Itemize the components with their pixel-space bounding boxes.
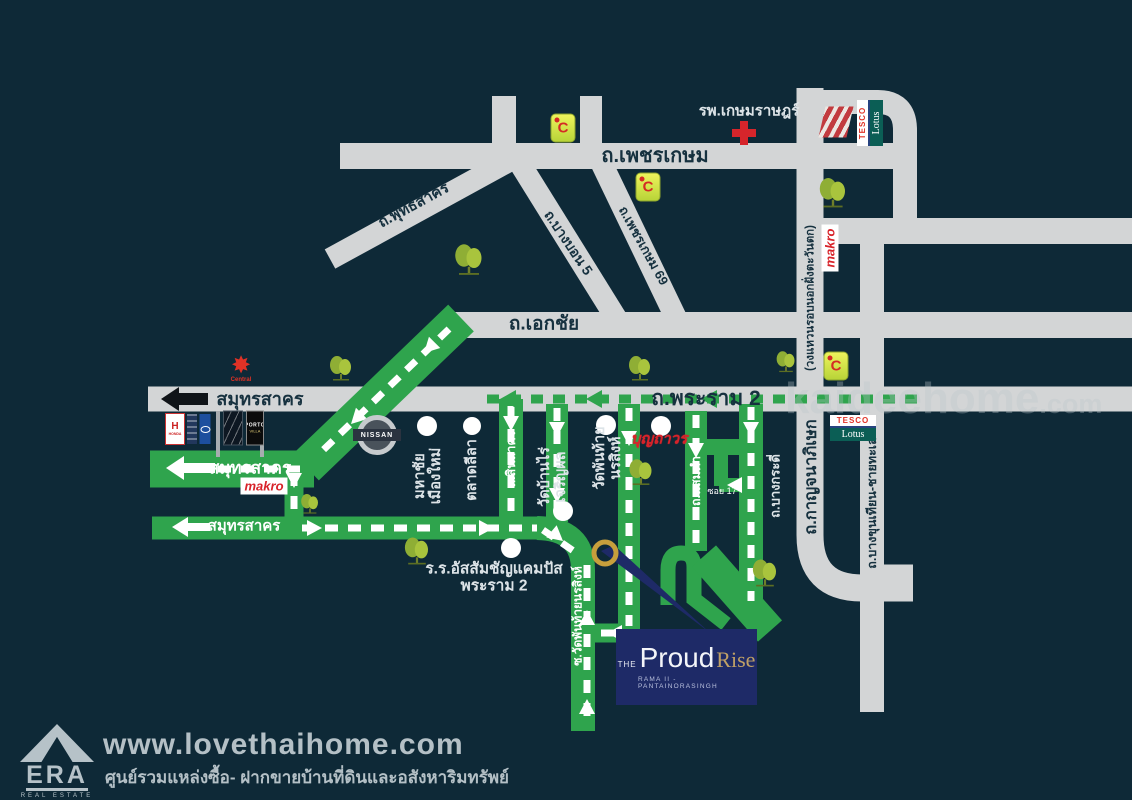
footer-tagline: ศูนย์รวมแหล่งซื้อ- ฝากขายบ้านที่ดินและอส… <box>105 764 509 791</box>
era-subtext: REAL ESTATE <box>21 793 94 799</box>
project-logo-card: THE Proud Rise RAMA II - PANTAINORASINGH <box>616 629 757 705</box>
poi-marker <box>417 416 437 436</box>
watermark-suffix: .com <box>1039 389 1102 419</box>
project-the: THE <box>618 660 637 669</box>
road-gray <box>330 161 509 259</box>
project-subtitle: RAMA II - PANTAINORASINGH <box>616 676 757 690</box>
era-house-icon <box>20 724 94 762</box>
sign-post <box>216 411 220 457</box>
tree-icon <box>455 244 481 275</box>
tree-icon <box>405 538 428 565</box>
era-text: ERA <box>26 762 88 791</box>
poi-marker <box>463 417 481 435</box>
watermark: kaideehome.com <box>785 374 1102 424</box>
footer: ERA REAL ESTATE www.lovethaihome.com ศูน… <box>0 718 1132 800</box>
sign-post <box>260 411 264 457</box>
era-logo: ERA REAL ESTATE <box>14 724 100 799</box>
location-map: ถ.เพชรเกษมถ.พุทธสาครถ.บางบอน 5ถ.เพชรเกษม… <box>0 0 1132 800</box>
road-green <box>537 528 583 731</box>
poi-marker <box>651 416 671 436</box>
tree-icon <box>330 356 351 381</box>
poi-marker <box>501 538 521 558</box>
project-name: Proud <box>640 645 715 671</box>
tree-icon <box>629 356 650 381</box>
tree-icon <box>301 494 318 514</box>
project-name-2: Rise <box>716 647 755 673</box>
watermark-text: kaideehome <box>785 374 1039 423</box>
tree-icon <box>777 351 795 372</box>
website-url: www.lovethaihome.com <box>103 728 464 762</box>
poi-marker <box>596 415 616 435</box>
poi-marker <box>553 501 573 521</box>
tree-icon <box>820 178 845 207</box>
